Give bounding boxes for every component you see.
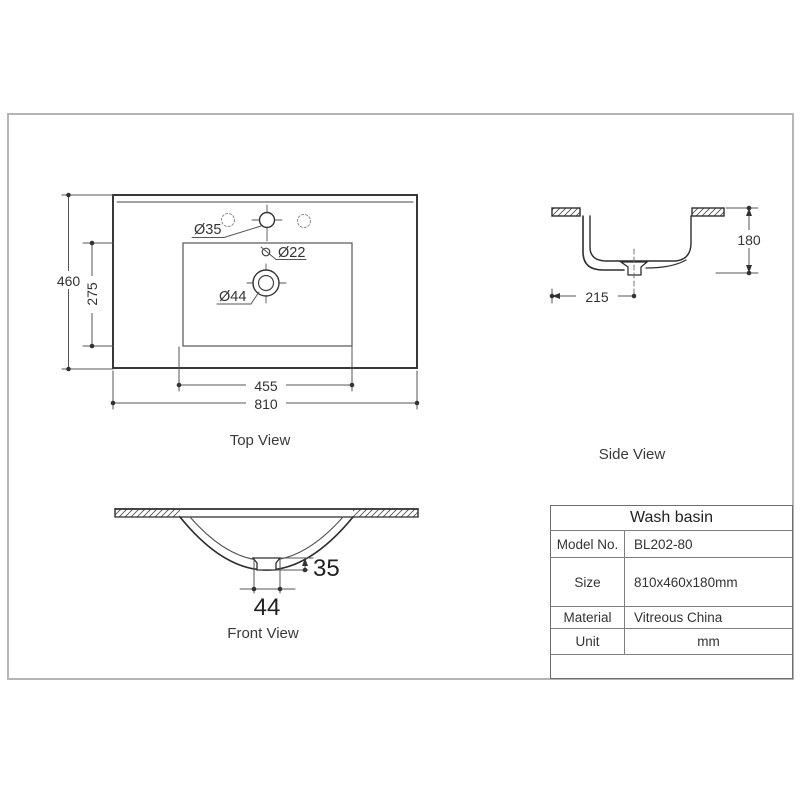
front-bowl-inner	[190, 517, 343, 561]
drain-hole-label: Ø44	[219, 289, 246, 305]
dim-inner-height: 275	[83, 241, 113, 349]
spec-table-empty-row	[551, 654, 792, 678]
spec-table: Wash basin Model No. BL202-80 Size 810x4…	[550, 505, 793, 679]
spec-row-model-value: BL202-80	[625, 530, 792, 557]
svg-text:44: 44	[254, 594, 281, 621]
faucet-hole	[260, 213, 275, 228]
drawing-canvas: Ø35 Ø22 Ø44 460	[0, 0, 800, 800]
side-bowl-outer	[583, 216, 624, 270]
side-bowl-inner	[590, 216, 691, 261]
front-flange-left	[115, 509, 180, 517]
spec-row-material-label: Material	[551, 606, 625, 628]
svg-text:215: 215	[585, 289, 609, 305]
svg-text:810: 810	[254, 396, 278, 412]
front-flange-right	[353, 509, 418, 517]
overflow-hole-label: Ø22	[278, 245, 305, 261]
spec-row-size-label: Size	[551, 557, 625, 606]
dim-front-drain-depth: 35	[277, 555, 340, 582]
top-view-label: Top View	[230, 432, 291, 449]
front-drain	[253, 558, 280, 570]
svg-text:275: 275	[84, 282, 100, 306]
svg-text:180: 180	[737, 232, 761, 248]
spec-row-unit-value: mm	[625, 628, 792, 654]
side-view: 180 215 Side View	[550, 206, 765, 463]
dim-side-drain-offset: 215	[550, 287, 637, 305]
svg-text:35: 35	[313, 555, 340, 582]
drain-hole-outer	[253, 270, 279, 296]
svg-text:460: 460	[57, 273, 81, 289]
spec-row-model-label: Model No.	[551, 530, 625, 557]
spec-row-unit-label: Unit	[551, 628, 625, 654]
side-view-label: Side View	[599, 446, 666, 463]
spec-row-material-value: Vitreous China	[625, 606, 792, 628]
side-flange-left	[552, 208, 580, 216]
front-view-label: Front View	[227, 625, 299, 642]
top-view: Ø35 Ø22 Ø44 460	[55, 193, 419, 449]
svg-text:455: 455	[254, 378, 278, 394]
front-view: 35 44 Front View	[115, 509, 418, 642]
dim-outer-height: 460	[55, 193, 113, 372]
side-flange-right	[692, 208, 724, 216]
faucet-hole-label: Ø35	[194, 222, 221, 238]
technical-drawing-sheet: Ø35 Ø22 Ø44 460	[0, 0, 800, 800]
spec-table-title: Wash basin	[551, 506, 792, 530]
spec-row-size-value: 810x460x180mm	[625, 557, 792, 606]
